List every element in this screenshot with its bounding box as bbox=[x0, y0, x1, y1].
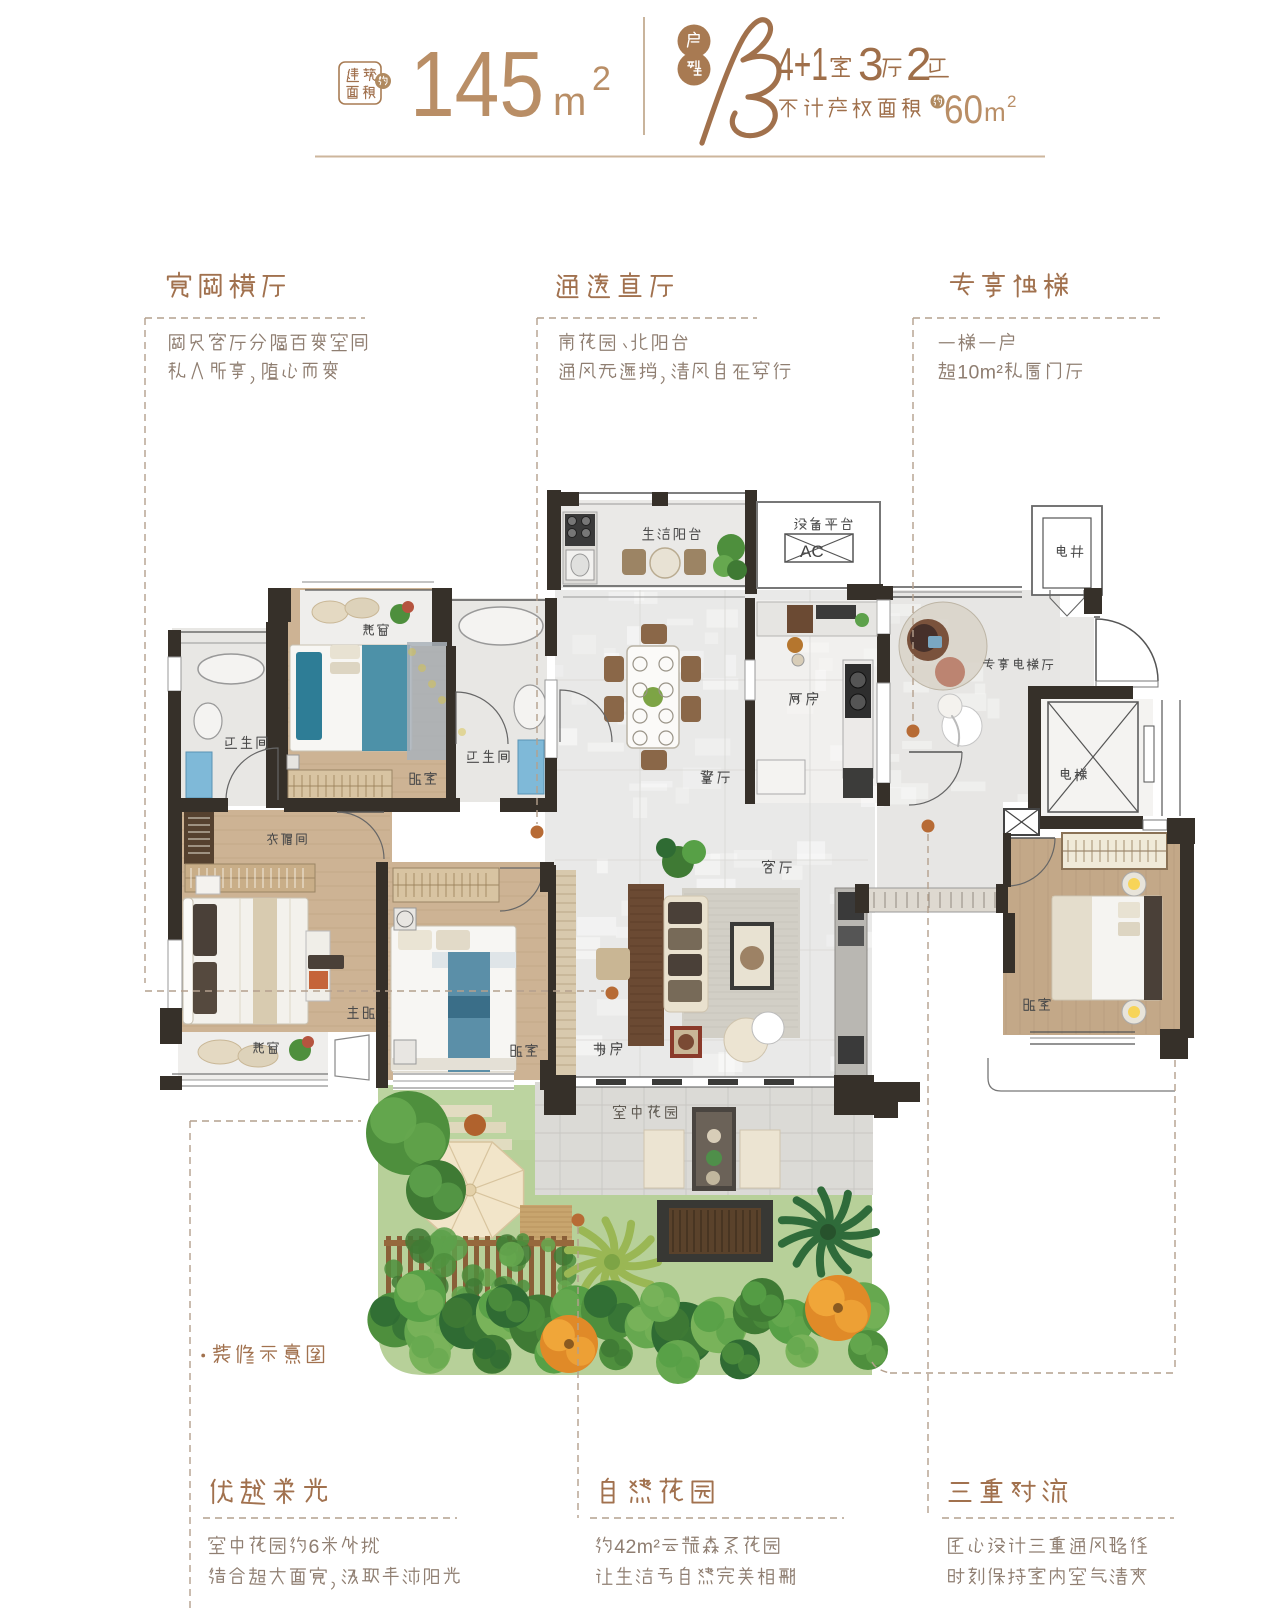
svg-text:m: m bbox=[980, 361, 996, 383]
svg-text:AC: AC bbox=[800, 542, 824, 561]
svg-text:6: 6 bbox=[309, 1536, 320, 1558]
svg-text:4: 4 bbox=[614, 1536, 625, 1558]
svg-text:²: ² bbox=[653, 1536, 660, 1558]
svg-text:60: 60 bbox=[944, 88, 983, 132]
svg-text:2: 2 bbox=[592, 60, 611, 98]
svg-text:0: 0 bbox=[969, 361, 980, 383]
svg-text:2: 2 bbox=[626, 1536, 637, 1558]
svg-text:m: m bbox=[553, 80, 586, 124]
svg-text:m: m bbox=[984, 97, 1006, 127]
svg-text:4+1: 4+1 bbox=[777, 38, 828, 90]
svg-text:3: 3 bbox=[858, 38, 884, 90]
svg-text:145: 145 bbox=[410, 32, 544, 136]
svg-text:m: m bbox=[637, 1536, 653, 1558]
svg-text:²: ² bbox=[996, 361, 1003, 383]
svg-text:2: 2 bbox=[1007, 92, 1016, 111]
svg-text:1: 1 bbox=[957, 361, 968, 383]
svg-text:2: 2 bbox=[906, 38, 932, 90]
